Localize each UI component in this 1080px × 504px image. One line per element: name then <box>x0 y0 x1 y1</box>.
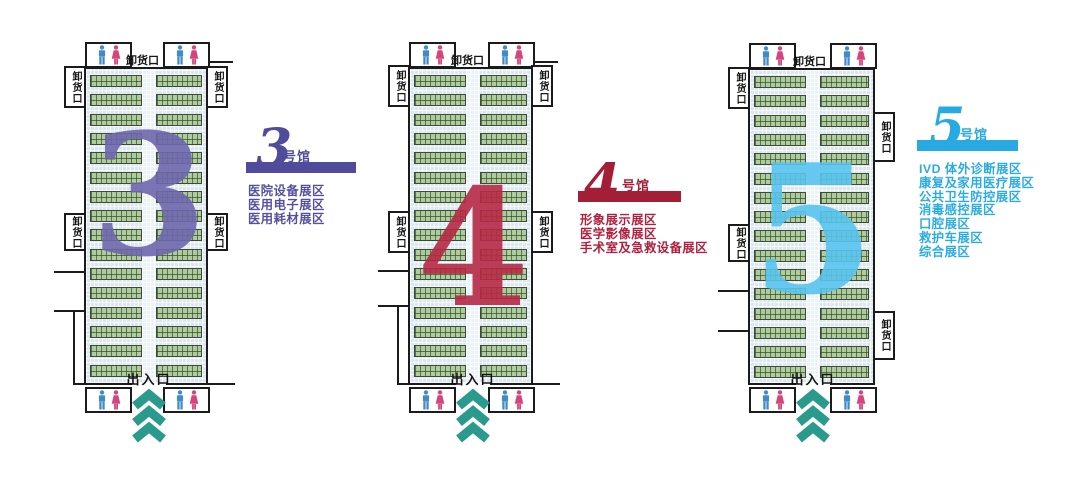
hall-5-legend: 5号馆IVD 体外诊断展区康复及家用医疗展区公共卫生防控展区消毒感控展区口腔展区… <box>917 109 1078 269</box>
female-icon <box>514 390 524 410</box>
legend-item: IVD 体外诊断展区 <box>919 163 1034 177</box>
booth-block <box>820 76 869 88</box>
booth-block <box>754 76 806 88</box>
female-icon <box>514 45 524 65</box>
wall-step-vertical <box>73 310 75 385</box>
hall-number: 3 <box>74 111 224 279</box>
male-icon <box>842 46 852 66</box>
unloading-dock-text: 卸货口 <box>537 216 547 249</box>
entrance-exit-label: 出入口 <box>441 369 505 388</box>
wall-stub <box>378 270 410 272</box>
booth-block <box>414 94 466 106</box>
booth-block <box>820 346 869 358</box>
booth-block <box>480 75 527 87</box>
unloading-dock-text: 卸货口 <box>879 319 889 352</box>
restroom <box>163 42 210 68</box>
female-icon <box>435 390 445 410</box>
restroom <box>830 43 877 69</box>
booth-block <box>156 307 202 319</box>
restroom <box>830 387 877 413</box>
unloading-dock-text: 卸货口 <box>394 70 404 103</box>
unloading-dock-label: 卸货口 <box>784 53 826 69</box>
exhibition-floor-plan: 3卸货口卸货口卸货口卸货口卸货口出入口3号馆医院设备展区医用电子展区医用耗材展区… <box>0 0 1080 504</box>
entrance-up-arrows-icon <box>795 388 831 446</box>
male-icon <box>97 390 107 410</box>
unloading-dock: 卸货口 <box>206 66 228 108</box>
female-icon <box>189 45 199 65</box>
unloading-dock-text: 卸货口 <box>70 216 80 249</box>
hall-4-legend: 4号馆形象展示展区医学影像展区手术室及急救设备展区 <box>578 160 741 320</box>
female-icon <box>775 390 785 410</box>
booth-block <box>414 345 466 357</box>
restroom <box>488 387 535 413</box>
booth-block <box>90 345 142 357</box>
entrance-up-arrows-icon <box>455 388 491 446</box>
legend-item: 医用电子展区 <box>248 199 325 213</box>
entrance-arrows <box>795 388 831 446</box>
booth-block <box>480 133 527 145</box>
legend-item: 医学影像展区 <box>580 228 708 242</box>
unloading-dock-text: 卸货口 <box>70 71 80 104</box>
unloading-dock-text: 卸货口 <box>212 71 222 104</box>
hall-number: 4 <box>398 168 548 330</box>
male-icon <box>97 45 107 65</box>
booth-block <box>90 326 142 338</box>
unloading-dock-text: 卸货口 <box>734 227 744 260</box>
female-icon <box>856 390 866 410</box>
wall-stub <box>533 61 558 63</box>
legend-suffix: 号馆 <box>622 175 650 194</box>
legend-item: 康复及家用医疗展区 <box>919 177 1034 191</box>
booth-block <box>90 307 142 319</box>
wall-stub <box>718 330 750 332</box>
legend-item: 医院设备展区 <box>248 185 325 199</box>
male-icon <box>421 390 431 410</box>
restroom <box>85 387 132 413</box>
booth-block <box>754 346 806 358</box>
legend-zone-list: IVD 体外诊断展区康复及家用医疗展区公共卫生防控展区消毒感控展区口腔展区救护车… <box>919 163 1034 260</box>
booth-block <box>414 114 466 126</box>
wall-stub <box>378 305 410 307</box>
legend-item: 综合展区 <box>919 246 1034 260</box>
booth-block <box>820 95 869 107</box>
unloading-dock: 卸货口 <box>388 211 410 253</box>
unloading-dock-label: 卸货口 <box>117 52 159 68</box>
female-icon <box>856 46 866 66</box>
legend-number: 4 <box>584 162 620 206</box>
wall-step-bottom <box>397 383 410 385</box>
male-icon <box>842 390 852 410</box>
booth-block <box>480 114 527 126</box>
male-icon <box>421 45 431 65</box>
unloading-dock-text: 卸货口 <box>394 216 404 249</box>
legend-zone-list: 医院设备展区医用电子展区医用耗材展区 <box>248 185 325 226</box>
unloading-dock: 卸货口 <box>531 65 553 107</box>
wall-stub <box>208 383 235 385</box>
entrance-arrows <box>455 388 491 446</box>
legend-zone-list: 形象展示展区医学影像展区手术室及急救设备展区 <box>580 214 708 255</box>
unloading-dock: 卸货口 <box>873 311 895 360</box>
legend-item: 形象展示展区 <box>580 214 708 228</box>
restroom <box>409 387 456 413</box>
restroom <box>488 42 535 68</box>
male-icon <box>761 390 771 410</box>
male-icon <box>500 45 510 65</box>
legend-suffix: 号馆 <box>283 146 311 165</box>
legend-suffix: 号馆 <box>960 124 988 143</box>
unloading-dock-text: 卸货口 <box>879 121 889 154</box>
unloading-dock: 卸货口 <box>531 211 553 253</box>
unloading-dock-text: 卸货口 <box>537 70 547 103</box>
unloading-dock: 卸货口 <box>206 213 228 251</box>
wall-stub <box>718 290 750 292</box>
booth-block <box>156 345 202 357</box>
booth-block <box>156 326 202 338</box>
unloading-dock: 卸货口 <box>64 213 86 251</box>
unloading-dock: 卸货口 <box>64 66 86 108</box>
unloading-dock-text: 卸货口 <box>734 72 744 105</box>
legend-item: 口腔展区 <box>919 218 1034 232</box>
unloading-dock: 卸货口 <box>388 65 410 107</box>
male-icon <box>175 45 185 65</box>
booth-block <box>156 75 202 87</box>
unloading-dock-label: 卸货口 <box>442 52 484 68</box>
booth-block <box>90 75 142 87</box>
wall-step-vertical <box>397 305 399 385</box>
wall-stub <box>54 271 86 273</box>
restroom <box>163 387 210 413</box>
booth-block <box>414 75 466 87</box>
legend-item: 救护车展区 <box>919 232 1034 246</box>
unloading-dock: 卸货口 <box>873 112 895 162</box>
male-icon <box>500 390 510 410</box>
wall-stub <box>54 310 86 312</box>
booth-block <box>480 94 527 106</box>
wall-stub <box>208 61 233 63</box>
unloading-dock: 卸货口 <box>728 224 750 262</box>
booth-block <box>480 345 527 357</box>
female-icon <box>111 390 121 410</box>
female-icon <box>775 46 785 66</box>
restroom <box>749 387 796 413</box>
legend-item: 医用耗材展区 <box>248 213 325 227</box>
entrance-arrows <box>131 388 167 446</box>
unloading-dock-text: 卸货口 <box>212 216 222 249</box>
wall-stub <box>533 383 560 385</box>
booth-block <box>414 133 466 145</box>
legend-item: 手术室及急救设备展区 <box>580 242 708 256</box>
male-icon <box>175 390 185 410</box>
entrance-exit-label: 出入口 <box>117 369 181 388</box>
unloading-dock: 卸货口 <box>728 67 750 109</box>
hall-number: 5 <box>738 141 888 319</box>
booth-block <box>754 95 806 107</box>
wall-step-bottom <box>73 383 86 385</box>
male-icon <box>761 46 771 66</box>
female-icon <box>189 390 199 410</box>
entrance-exit-label: 出入口 <box>781 369 845 388</box>
entrance-up-arrows-icon <box>131 388 167 446</box>
